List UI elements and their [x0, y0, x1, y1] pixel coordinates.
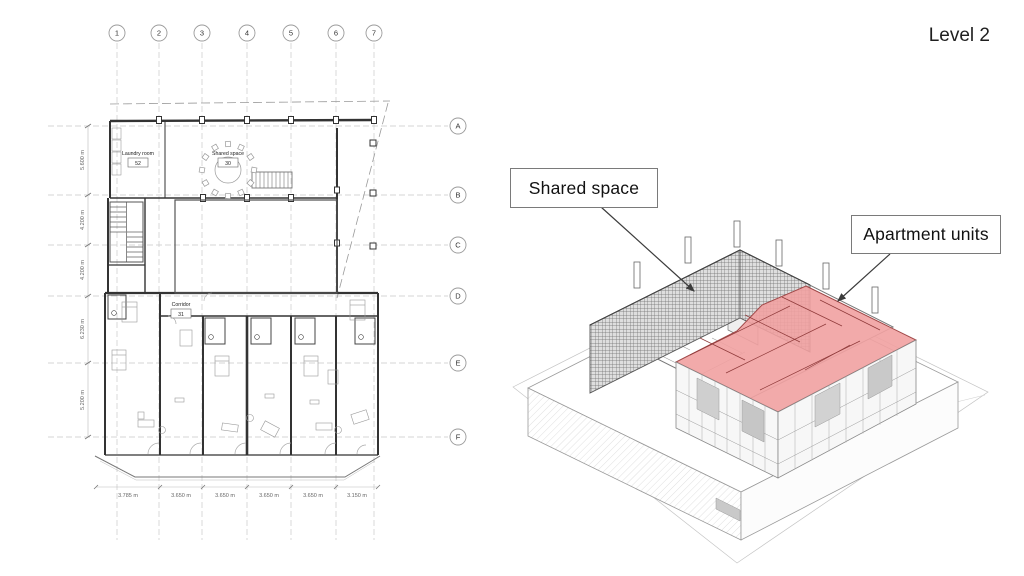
grid-label-2: 2 — [157, 29, 161, 38]
apartment-units-callout-label: Apartment units — [863, 224, 989, 245]
grid-label-B: B — [455, 191, 460, 200]
dimension-chain-bottom: 3.785 m 3.650 m 3.650 m 3.650 m 3.650 m … — [94, 485, 380, 499]
grid-label-F: F — [456, 433, 461, 442]
grid-bubble-7: 7 — [366, 25, 382, 41]
dim-bottom-1: 3.785 m — [118, 493, 138, 499]
presentation-slide: 1 2 3 4 5 6 7 A B C D E F 5.600 m — [0, 0, 1024, 576]
grid-label-3: 3 — [200, 29, 204, 38]
dim-bottom-5: 3.650 m — [303, 493, 323, 499]
dim-bottom-6: 3.150 m — [347, 493, 367, 499]
grid-label-A: A — [455, 122, 460, 131]
corridor-number: 31 — [178, 312, 184, 318]
grid-row-bubbles: A B C D E F — [450, 118, 466, 445]
axonometric-view — [513, 207, 988, 563]
stair-shared — [252, 172, 292, 188]
grid-label-5: 5 — [289, 29, 293, 38]
grid-bubble-A: A — [450, 118, 466, 134]
room-label-shared-space: Shared space 30 — [212, 151, 244, 167]
grid-label-E: E — [455, 359, 460, 368]
void-outline — [175, 200, 337, 293]
grid-bubble-4: 4 — [239, 25, 255, 41]
grid-bubble-E: E — [450, 355, 466, 371]
grid-bubble-6: 6 — [328, 25, 344, 41]
room-label-corridor: Corridor 31 — [171, 302, 191, 318]
apartment-units-callout: Apartment units — [851, 215, 1001, 254]
dim-bottom-4: 3.650 m — [259, 493, 279, 499]
round-table-icon — [199, 141, 257, 198]
shared-space-name: Shared space — [212, 151, 244, 157]
architectural-drawing-canvas: 1 2 3 4 5 6 7 A B C D E F 5.600 m — [0, 0, 1024, 576]
dim-left-3: 4.200 m — [80, 260, 86, 280]
dim-bottom-3: 3.650 m — [215, 493, 235, 499]
apartment-units-arrow — [838, 254, 890, 301]
grid-bubble-2: 2 — [151, 25, 167, 41]
room-label-laundry: Laundry room 52 — [122, 151, 154, 167]
shared-space-callout: Shared space — [510, 168, 658, 208]
grid-label-1: 1 — [115, 29, 119, 38]
columns-layer — [157, 117, 377, 250]
dim-bottom-2: 3.650 m — [171, 493, 191, 499]
balcony-strip — [95, 456, 380, 480]
shared-space-arrow — [601, 207, 694, 291]
grid-bubble-D: D — [450, 288, 466, 304]
furniture-layer — [112, 300, 369, 437]
shared-space-callout-label: Shared space — [529, 178, 639, 199]
grid-bubble-C: C — [450, 237, 466, 253]
grid-label-D: D — [455, 292, 461, 301]
laundry-room-number: 52 — [135, 161, 141, 167]
grid-label-6: 6 — [334, 29, 338, 38]
dim-left-4: 6.230 m — [80, 319, 86, 339]
grid-bubble-F: F — [450, 429, 466, 445]
stair-left — [110, 202, 143, 262]
dim-left-1: 5.600 m — [80, 150, 86, 170]
grid-bubble-5: 5 — [283, 25, 299, 41]
floor-plan-drawing: 1 2 3 4 5 6 7 A B C D E F 5.600 m — [48, 25, 466, 540]
grid-label-7: 7 — [372, 29, 376, 38]
grid-bubble-3: 3 — [194, 25, 210, 41]
laundry-cabinets — [112, 128, 121, 175]
grid-bubble-B: B — [450, 187, 466, 203]
bathroom-pods — [108, 295, 375, 344]
grid-label-C: C — [455, 241, 461, 250]
grid-bubble-1: 1 — [109, 25, 125, 41]
shared-space-number: 30 — [225, 161, 231, 167]
dimension-chain-left: 5.600 m 4.200 m 4.200 m 6.230 m 5.200 m — [80, 124, 91, 439]
corridor-name: Corridor — [172, 302, 191, 308]
dim-left-5: 5.200 m — [80, 390, 86, 410]
grid-column-bubbles: 1 2 3 4 5 6 7 — [109, 25, 382, 41]
grid-label-4: 4 — [245, 29, 249, 38]
dim-left-2: 4.200 m — [80, 210, 86, 230]
page-title: Level 2 — [929, 25, 990, 47]
laundry-room-name: Laundry room — [122, 151, 154, 157]
